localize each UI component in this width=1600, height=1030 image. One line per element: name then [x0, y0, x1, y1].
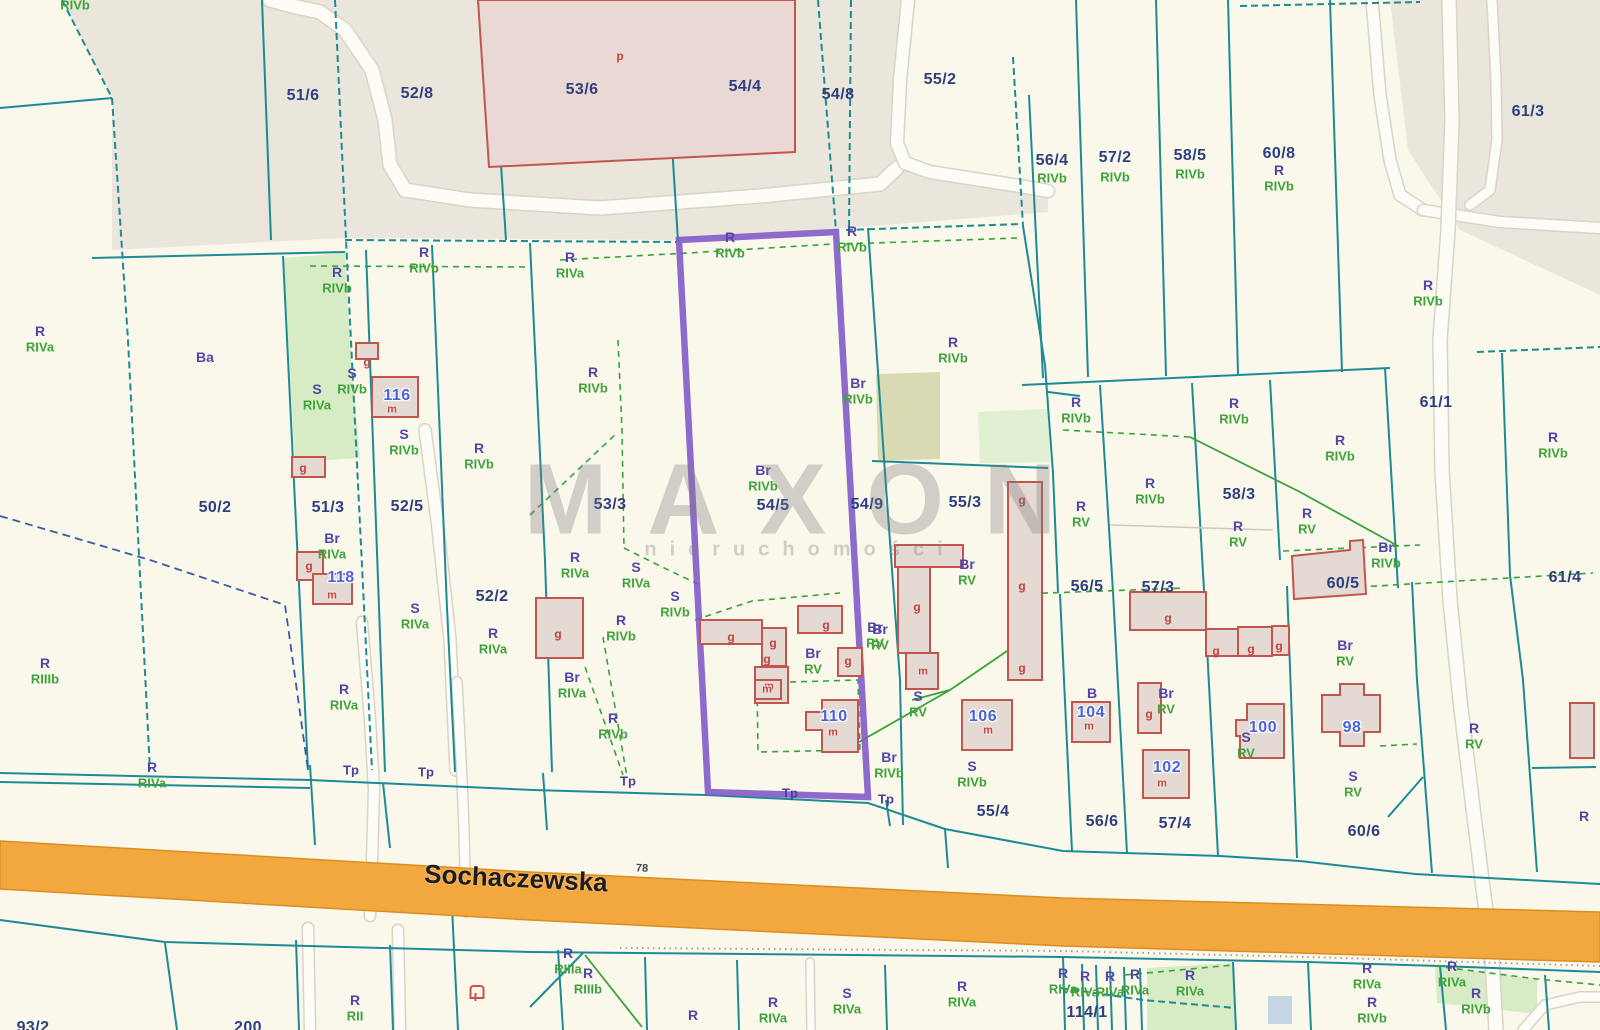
- land-use-code: Br: [324, 531, 340, 545]
- boundary-line-t: [1100, 385, 1113, 592]
- land-use-code: Br: [1158, 686, 1174, 700]
- soil-class-code: RIVa: [1438, 976, 1466, 989]
- land-use-code: R: [768, 995, 778, 1009]
- soil-class-code: RIVb: [1219, 413, 1249, 426]
- land-use-code: R: [1080, 969, 1090, 983]
- soil-class-code: RV: [958, 574, 976, 587]
- soil-class-code: RIVa: [401, 618, 429, 631]
- boundary-line-g: [1063, 430, 1190, 437]
- boundary-line-t: [1388, 777, 1423, 817]
- land-use-code: R: [957, 979, 967, 993]
- soil-class-code: RIIIb: [31, 673, 59, 686]
- building-letter: m: [387, 405, 397, 416]
- building: [798, 606, 842, 633]
- land-use-code: R: [1548, 430, 1558, 444]
- white-road: [308, 928, 310, 1030]
- soil-class-code: RV: [1229, 536, 1247, 549]
- land-use-code: R: [616, 613, 626, 627]
- house-number: 110: [820, 709, 847, 725]
- land-use-code: S: [312, 382, 321, 396]
- soil-class-code: RIVa: [833, 1003, 861, 1016]
- soil-class-code: RII: [347, 1010, 364, 1023]
- soil-class-code: RV: [1344, 786, 1362, 799]
- land-use-code-tp: Tp: [782, 787, 798, 800]
- land-use-code-tp: Tp: [878, 793, 894, 806]
- land-area: [978, 409, 1050, 463]
- boundary-line-t: [1270, 380, 1280, 560]
- building-letter: g: [1247, 643, 1254, 655]
- parcel-number: 93/2: [17, 1020, 50, 1030]
- building: [1238, 627, 1272, 656]
- land-use-code: R: [1076, 499, 1086, 513]
- boundary-line-t: [1532, 767, 1596, 768]
- parcel-number: 52/2: [476, 589, 509, 605]
- soil-class-code: RIVa: [759, 1012, 787, 1025]
- building-letter: g: [554, 628, 561, 640]
- parcel-number: 61/1: [1420, 395, 1453, 411]
- soil-class-code: RIVb: [715, 247, 745, 260]
- boundary-line-g: [618, 340, 624, 548]
- boundary-line-t: [543, 773, 547, 830]
- parcel-number: 61/4: [1549, 570, 1582, 586]
- boundary-line-t: [1510, 575, 1537, 872]
- soil-class-code: RV: [866, 637, 884, 650]
- land-use-code: R: [1274, 163, 1284, 177]
- building-letter: g: [769, 637, 776, 649]
- land-use-code: Br: [959, 557, 975, 571]
- boundary-line-g: [560, 244, 833, 260]
- house-number: 100: [1249, 720, 1277, 736]
- land-use-code: R: [1335, 433, 1345, 447]
- land-use-code: R: [688, 1008, 698, 1022]
- soil-class-code: RIVb: [60, 0, 90, 12]
- parcel-number: 52/5: [391, 499, 424, 515]
- soil-class-code: RV: [804, 663, 822, 676]
- soil-class-code: RIVb: [322, 282, 352, 295]
- parcel-number: 50/2: [199, 500, 232, 516]
- land-use-code: R: [1233, 519, 1243, 533]
- parcel-number: 57/2: [1099, 150, 1132, 166]
- building-letter: g: [363, 356, 370, 368]
- land-use-code: R: [1185, 968, 1195, 982]
- building-letter: m: [762, 685, 772, 696]
- land-use-code: R: [563, 946, 573, 960]
- building-letter: m: [327, 591, 337, 602]
- parcel-number: 58/5: [1174, 148, 1207, 164]
- land-use-code-tp: Tp: [418, 766, 434, 779]
- boundary-line-t: [1192, 383, 1204, 590]
- soil-class-code: RIVb: [874, 767, 904, 780]
- land-use-code: R: [847, 224, 857, 238]
- house-number: 98: [1343, 720, 1362, 736]
- building-letter: g: [763, 653, 770, 665]
- white-road: [398, 930, 400, 1030]
- parcel-lines-layer: [0, 0, 1600, 1030]
- soil-class-code: RV: [1157, 703, 1175, 716]
- land-use-code: R: [1145, 476, 1155, 490]
- soil-class-code: RIVa: [1071, 986, 1099, 999]
- building-letter: g: [1145, 708, 1152, 720]
- soil-class-code: RIVb: [837, 241, 867, 254]
- boundary-line-gs: [1190, 437, 1398, 546]
- land-use-code: R: [350, 993, 360, 1007]
- parcel-number: 54/9: [851, 497, 884, 513]
- building-letter: g: [1275, 640, 1282, 652]
- white-road: [810, 962, 811, 1030]
- soil-class-code: RIVb: [957, 776, 987, 789]
- soil-class-code: RIVa: [318, 548, 346, 561]
- boundary-line-n: [0, 516, 308, 770]
- parcel-number: 60/6: [1348, 824, 1381, 840]
- building: [1322, 684, 1380, 746]
- land-use-code: Br: [755, 463, 771, 477]
- parcel-number: 54/8: [822, 87, 855, 103]
- land-use-code: S: [967, 759, 976, 773]
- boundary-line-t: [945, 829, 948, 868]
- boundary-line-t: [1022, 368, 1390, 385]
- land-use-code: R: [1302, 506, 1312, 520]
- soil-class-code: RIVb: [389, 444, 419, 457]
- soil-class-code: RIVb: [1413, 295, 1443, 308]
- boundary-line-t: [1029, 95, 1043, 378]
- soil-class-code: RIVb: [1135, 493, 1165, 506]
- soil-class-code: RIIIa: [554, 963, 581, 976]
- road-number-label: 78: [636, 863, 649, 875]
- boundary-line-g: [1380, 744, 1417, 746]
- land-use-code: R: [1362, 961, 1372, 975]
- parcel-number: 61/3: [1512, 104, 1545, 120]
- soil-class-code: RV: [1072, 516, 1090, 529]
- soil-class-code: RV: [1237, 747, 1255, 760]
- boundary-line-g: [603, 637, 627, 777]
- parcel-number: 57/3: [1142, 580, 1175, 596]
- soil-class-code: RIVb: [337, 383, 367, 396]
- soil-class-code: RIVb: [1100, 171, 1130, 184]
- boundary-line-t: [296, 940, 299, 1030]
- building: [1206, 629, 1238, 656]
- building-letter: m: [1157, 779, 1167, 790]
- building: [895, 545, 963, 567]
- land-use-code: R: [339, 682, 349, 696]
- boundary-line-t: [452, 907, 458, 1030]
- land-use-code: Br: [850, 376, 866, 390]
- land-use-code: S: [842, 986, 851, 1000]
- boundary-line-t: [1076, 0, 1088, 377]
- land-use-code: B: [1087, 686, 1097, 700]
- land-use-code: R: [40, 656, 50, 670]
- soil-class-code: RIVb: [748, 480, 778, 493]
- parcel-number: 56/4: [1036, 153, 1069, 169]
- boundary-line-t: [1330, 0, 1342, 372]
- land-use-code: R: [583, 966, 593, 980]
- parcel-number: 54/5: [757, 498, 790, 514]
- soil-class-code: RIVa: [479, 643, 507, 656]
- soil-class-code: RIVa: [330, 699, 358, 712]
- boundary-line-g: [846, 238, 1018, 244]
- parcel-number: 55/3: [949, 495, 982, 511]
- boundary-line-t: [737, 960, 739, 1030]
- map-canvas[interactable]: pgggggggmggmgmgggggggg51/652/853/654/454…: [0, 0, 1600, 1030]
- boundary-line-t: [1060, 594, 1072, 852]
- soil-class-code: RIVb: [1037, 172, 1067, 185]
- boundary-line-t: [1502, 353, 1510, 575]
- land-use-code: S: [410, 601, 419, 615]
- soil-class-code: RIVb: [1264, 180, 1294, 193]
- boundary-line-t: [1156, 0, 1166, 376]
- soil-class-code: RV: [1298, 523, 1316, 536]
- building: [1570, 703, 1594, 758]
- boundary-line-gray: [1110, 525, 1273, 530]
- land-use-code: R: [1105, 969, 1115, 983]
- soil-class-code: RIVa: [1353, 978, 1381, 991]
- white-road: [897, 0, 1048, 191]
- land-area: [876, 372, 940, 461]
- boundary-line-t: [310, 765, 315, 845]
- parcel-number: 56/6: [1086, 814, 1119, 830]
- parcel-number: 52/8: [401, 86, 434, 102]
- soil-class-code: RIVb: [606, 630, 636, 643]
- land-use-code: R: [1579, 809, 1589, 823]
- land-use-code: R: [948, 335, 958, 349]
- shrine-icon: [470, 985, 485, 999]
- parcel-number: 53/6: [566, 82, 599, 98]
- parcel-number: 51/6: [287, 88, 320, 104]
- land-use-code: R: [1469, 721, 1479, 735]
- soil-class-code: RV: [1336, 655, 1354, 668]
- land-use-code: R: [1071, 395, 1081, 409]
- building-letter: g: [727, 631, 734, 643]
- soil-class-code: RIVa: [26, 341, 54, 354]
- boundary-line-t: [383, 783, 390, 848]
- parcel-number: 58/3: [1223, 487, 1256, 503]
- land-use-code: S: [347, 366, 356, 380]
- building-letter: g: [1018, 580, 1025, 592]
- soil-class-code: RIVa: [622, 577, 650, 590]
- boundary-line-t: [885, 965, 887, 1030]
- parcel-number: 200: [234, 1020, 262, 1030]
- boundary-line-t: [645, 957, 647, 1030]
- soil-class-code: RIVa: [138, 777, 166, 790]
- soil-class-code: RV: [1465, 738, 1483, 751]
- land-use-code: R: [1058, 966, 1068, 980]
- building-letter: m: [918, 667, 928, 678]
- land-use-code: Ba: [196, 350, 214, 364]
- parcel-number: 55/4: [977, 804, 1010, 820]
- building-letter: m: [983, 726, 993, 737]
- boundary-line-t: [868, 228, 903, 825]
- house-number: 116: [383, 388, 410, 404]
- house-number: 118: [327, 570, 354, 586]
- building-letter: g: [1164, 612, 1171, 624]
- soil-class-code: RIVb: [1325, 450, 1355, 463]
- land-use-code: R: [35, 324, 45, 338]
- land-use-code: Br: [867, 620, 883, 634]
- building-letter: m: [1084, 722, 1094, 733]
- soil-class-code: RIVa: [303, 399, 331, 412]
- soil-class-code: RIVb: [409, 262, 439, 275]
- land-use-code: R: [608, 711, 618, 725]
- soil-class-code: RIVb: [660, 606, 690, 619]
- land-use-code-tp: Tp: [620, 775, 636, 788]
- boundary-line-t: [0, 98, 112, 108]
- boundary-line-td: [345, 240, 677, 242]
- land-use-code: R: [588, 365, 598, 379]
- house-number: 102: [1153, 760, 1181, 776]
- building-letter: p: [616, 50, 623, 62]
- land-use-code: R: [570, 550, 580, 564]
- house-number: 104: [1077, 705, 1105, 721]
- soil-class-code: RIIIb: [574, 983, 602, 996]
- parcel-number: 57/4: [1159, 816, 1192, 832]
- building-letter: g: [844, 655, 851, 667]
- soil-class-code: RIVb: [1461, 1003, 1491, 1016]
- parcel-number: 54/4: [729, 79, 762, 95]
- parcel-number: 114/1: [1066, 1005, 1107, 1021]
- soil-class-code: RIVb: [1371, 557, 1401, 570]
- soil-class-code: RIVb: [1538, 447, 1568, 460]
- misc-structure: [1268, 996, 1292, 1024]
- land-use-code: R: [1423, 278, 1433, 292]
- soil-class-code: RIVb: [578, 382, 608, 395]
- land-use-code: R: [1447, 959, 1457, 973]
- land-use-code: R: [147, 760, 157, 774]
- land-use-code: Br: [564, 670, 580, 684]
- soil-class-code: RIVb: [598, 728, 628, 741]
- soil-class-code: RIVb: [843, 393, 873, 406]
- building-letter: g: [1212, 645, 1219, 657]
- soil-class-code: RIVa: [1121, 984, 1149, 997]
- soil-class-code: RIVa: [558, 687, 586, 700]
- land-use-code: R: [1229, 396, 1239, 410]
- building-letter: m: [828, 728, 838, 739]
- soil-class-code: RIVb: [464, 458, 494, 471]
- building-letter: g: [1018, 494, 1025, 506]
- land-use-code: R: [725, 230, 735, 244]
- building-letter: g: [299, 462, 306, 474]
- parcel-number: 60/5: [1327, 576, 1360, 592]
- boundary-line-t: [530, 243, 552, 772]
- land-use-code: S: [1348, 769, 1357, 783]
- boundary-line-t: [1228, 0, 1238, 374]
- house-number: 106: [969, 709, 997, 725]
- land-use-code: R: [565, 250, 575, 264]
- boundary-line-t: [1412, 582, 1432, 873]
- land-use-code: S: [913, 689, 922, 703]
- land-use-code: Br: [1337, 638, 1353, 652]
- soil-class-code: RIVa: [1176, 985, 1204, 998]
- soil-class-code: RIVb: [1357, 1012, 1387, 1025]
- land-use-code: R: [419, 245, 429, 259]
- soil-class-code: RIVb: [938, 352, 968, 365]
- land-use-code: R: [1367, 995, 1377, 1009]
- boundary-line-t: [165, 943, 177, 1030]
- land-use-code: R: [1471, 986, 1481, 1000]
- land-use-code: Br: [805, 646, 821, 660]
- soil-class-code: RIVa: [561, 567, 589, 580]
- boundary-line-t: [945, 829, 1600, 884]
- soil-class-code: RIVb: [1175, 168, 1205, 181]
- land-use-code: S: [631, 560, 640, 574]
- soil-class-code: RIVb: [1061, 412, 1091, 425]
- parcel-number: 60/8: [1263, 146, 1296, 162]
- building-letter: g: [913, 601, 920, 613]
- soil-class-code: RIVa: [556, 267, 584, 280]
- soil-class-code: RIVa: [948, 996, 976, 1009]
- land-use-code: S: [670, 589, 679, 603]
- boundary-line-td: [1477, 347, 1600, 352]
- land-use-code: R: [488, 626, 498, 640]
- building-letter: g: [1018, 662, 1025, 674]
- parcel-number: 51/3: [312, 500, 345, 516]
- building-letter: g: [822, 619, 829, 631]
- soil-class-code: RIVa: [1096, 986, 1124, 999]
- building-letter: g: [305, 560, 312, 572]
- land-use-code: Br: [881, 750, 897, 764]
- land-use-code-tp: Tp: [343, 764, 359, 777]
- soil-class-code: RV: [909, 706, 927, 719]
- land-use-code: R: [332, 265, 342, 279]
- building: [292, 457, 325, 477]
- land-use-code: S: [399, 427, 408, 441]
- land-use-code: Br: [1378, 540, 1394, 554]
- parcel-number: 55/2: [924, 72, 957, 88]
- land-use-code: R: [474, 441, 484, 455]
- parcel-number: 56/5: [1071, 579, 1104, 595]
- boundary-line-t: [1308, 962, 1311, 1030]
- land-use-code: R: [1130, 967, 1140, 981]
- parcel-number: 53/3: [594, 497, 627, 513]
